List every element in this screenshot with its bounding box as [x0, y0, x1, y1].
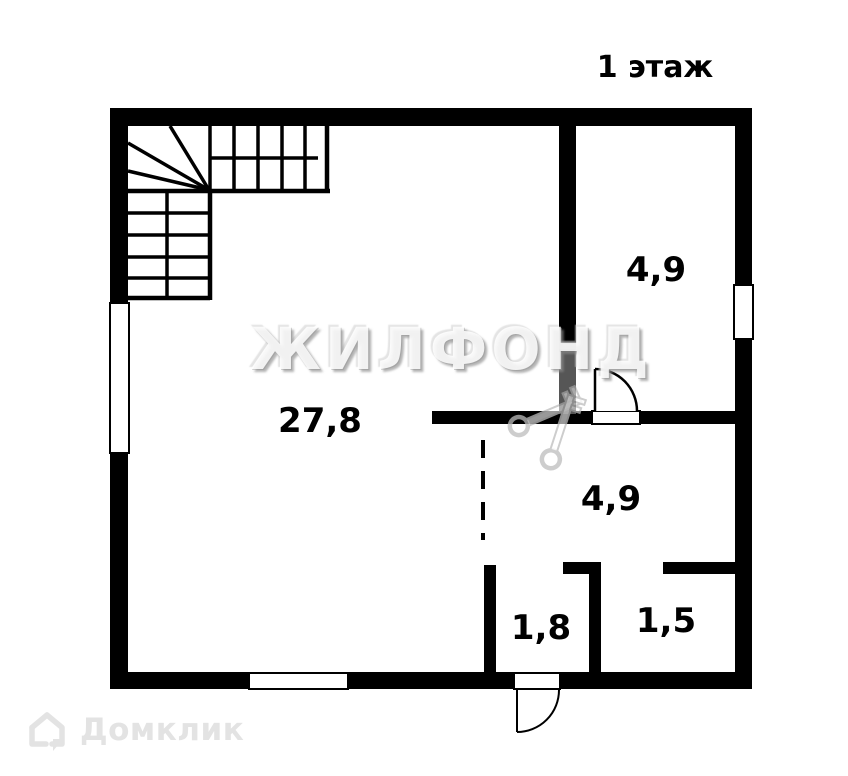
floorplan-canvas — [0, 0, 848, 776]
room-area-label-middle-right: 4,9 — [551, 482, 671, 516]
interior-wall-horizontal — [432, 411, 735, 424]
room-area-label-closet: 1,8 — [481, 611, 601, 645]
outer-wall-bottom — [110, 672, 752, 689]
doorway-entrance — [514, 673, 560, 689]
outer-wall-right — [735, 108, 752, 689]
stair-winder-line — [128, 143, 209, 190]
portal-logo: Домклик — [22, 706, 244, 754]
room-area-label-entry: 1,5 — [606, 604, 726, 638]
room-area-label-top-right: 4,9 — [596, 253, 716, 287]
stair-winder-line — [128, 171, 209, 190]
floorplan-page: 1 этаж 27,8 4,9 4,9 1,8 1,5 ЖИЛФОНД Домк… — [0, 0, 848, 776]
entry-wall-top — [663, 562, 735, 574]
staircase — [128, 126, 330, 300]
window-bottom — [249, 673, 348, 689]
agency-watermark: ЖИЛФОНД — [250, 320, 653, 378]
window-right — [734, 285, 753, 339]
doorway-room-middle — [592, 411, 640, 424]
window-left — [110, 303, 129, 453]
outer-wall-top — [110, 108, 752, 126]
room-area-label-living: 27,8 — [250, 404, 390, 438]
floor-title: 1 этаж — [560, 53, 750, 83]
house-icon — [22, 706, 72, 754]
door-arc-entrance — [517, 690, 559, 732]
portal-logo-text: Домклик — [80, 715, 244, 746]
